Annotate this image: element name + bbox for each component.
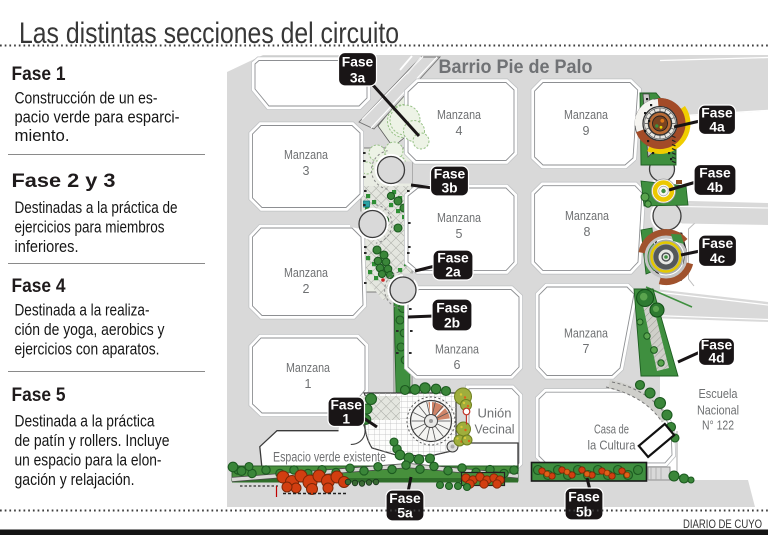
svg-text:Manzana: Manzana [565, 209, 609, 223]
svg-text:de patín y rollers. Incluye: de patín y rollers. Incluye [15, 431, 170, 450]
svg-text:Fase: Fase [434, 167, 466, 182]
svg-text:2a: 2a [445, 265, 461, 280]
svg-text:ción de yoga, aerobics y: ción de yoga, aerobics y [15, 320, 165, 339]
svg-text:Manzana: Manzana [435, 343, 479, 357]
svg-text:4d: 4d [708, 351, 724, 366]
svg-text:Fase 4: Fase 4 [12, 275, 66, 297]
svg-text:6: 6 [454, 358, 461, 372]
svg-text:4b: 4b [707, 180, 723, 195]
svg-text:Manzana: Manzana [286, 361, 330, 375]
svg-text:inferiores.: inferiores. [15, 237, 79, 256]
svg-text:Manzana: Manzana [564, 327, 608, 341]
svg-text:Unión: Unión [478, 407, 512, 421]
svg-text:pacio verde para esparci-: pacio verde para esparci- [15, 107, 180, 126]
svg-text:5: 5 [456, 227, 463, 241]
svg-text:8: 8 [584, 225, 591, 239]
svg-text:Manzana: Manzana [437, 211, 481, 225]
svg-text:2b: 2b [444, 316, 460, 331]
svg-text:Fase: Fase [330, 397, 362, 412]
svg-text:Fase: Fase [342, 55, 374, 70]
svg-text:Fase: Fase [702, 236, 734, 251]
svg-text:Fase: Fase [437, 251, 469, 266]
svg-text:Manzana: Manzana [284, 266, 328, 280]
svg-text:Fase: Fase [699, 166, 731, 181]
svg-text:un espacio para la elon-: un espacio para la elon- [15, 451, 162, 470]
svg-text:4a: 4a [709, 119, 725, 134]
svg-text:4c: 4c [710, 251, 726, 266]
svg-text:Manzana: Manzana [284, 148, 328, 162]
svg-text:miento.: miento. [15, 126, 70, 145]
svg-text:DIARIO DE CUYO: DIARIO DE CUYO [683, 517, 762, 531]
svg-text:5b: 5b [576, 505, 592, 520]
svg-text:Casa de: Casa de [594, 423, 629, 437]
svg-text:Fase: Fase [568, 489, 600, 504]
svg-text:Destinadas a la práctica de: Destinadas a la práctica de [15, 198, 178, 217]
svg-text:Manzana: Manzana [437, 108, 481, 122]
svg-text:gación y relajación.: gación y relajación. [15, 470, 135, 489]
svg-text:Fase: Fase [389, 491, 421, 506]
svg-text:Espacio verde existente: Espacio verde existente [273, 450, 386, 465]
svg-text:la Cultura: la Cultura [588, 439, 636, 453]
svg-text:Destinada a la práctica: Destinada a la práctica [15, 412, 155, 431]
svg-text:Escuela: Escuela [699, 387, 738, 401]
svg-text:ejercicios para miembros: ejercicios para miembros [15, 218, 165, 237]
svg-text:Nacional: Nacional [697, 403, 739, 417]
svg-text:Destinada a la realiza-: Destinada a la realiza- [15, 301, 150, 320]
svg-text:Fase: Fase [436, 300, 468, 315]
svg-text:Construcción de un es-: Construcción de un es- [15, 89, 158, 108]
svg-text:Fase: Fase [701, 105, 733, 120]
svg-text:Fase 2 y 3: Fase 2 y 3 [12, 170, 116, 192]
svg-text:2: 2 [303, 282, 310, 296]
svg-text:Vecinal: Vecinal [475, 423, 515, 437]
svg-text:4: 4 [456, 124, 463, 138]
svg-text:Barrio Pie de Palo: Barrio Pie de Palo [439, 56, 593, 78]
svg-text:3: 3 [303, 164, 310, 178]
svg-text:3b: 3b [441, 181, 457, 196]
svg-text:9: 9 [583, 124, 590, 138]
svg-text:5a: 5a [397, 506, 413, 521]
svg-text:1: 1 [342, 411, 350, 426]
svg-text:Manzana: Manzana [564, 108, 608, 122]
svg-text:Fase 5: Fase 5 [12, 384, 66, 406]
svg-text:1: 1 [305, 377, 312, 391]
svg-text:N° 122: N° 122 [702, 419, 734, 433]
svg-text:7: 7 [583, 342, 590, 356]
svg-text:ejercicios con aparatos.: ejercicios con aparatos. [15, 340, 160, 359]
svg-text:3a: 3a [350, 70, 366, 85]
svg-text:Fase 1: Fase 1 [12, 63, 66, 85]
